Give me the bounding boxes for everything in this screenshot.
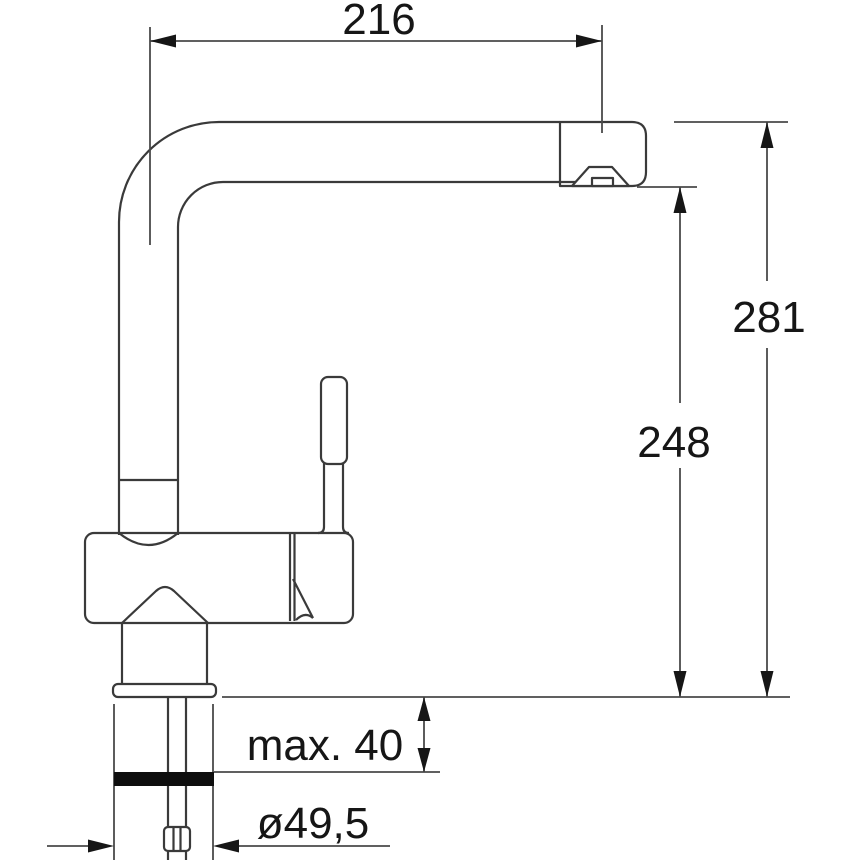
- spout-tube-outer: [119, 122, 560, 535]
- arrowhead-down: [418, 748, 431, 772]
- arrowhead-up: [418, 697, 431, 721]
- gasket-seal: [114, 772, 214, 786]
- handle-indicator-diagonal: [293, 579, 313, 618]
- arrowhead-right-pointing: [88, 840, 114, 853]
- hex-nut: [164, 827, 190, 851]
- dim-label-diameter: ø49,5: [257, 799, 370, 848]
- dim-label-216: 216: [342, 0, 415, 44]
- lever-grip: [321, 377, 347, 464]
- arrowhead-up: [761, 122, 774, 148]
- base-flange: [113, 684, 216, 697]
- arrowhead-down: [761, 671, 774, 697]
- arrowhead-down: [674, 671, 687, 697]
- arrowhead-left-pointing: [213, 840, 239, 853]
- arrowhead-up: [674, 187, 687, 213]
- riser-socket-arc: [119, 533, 178, 545]
- base-cone: [122, 587, 208, 623]
- dim-label-max40: max. 40: [247, 721, 404, 770]
- lever-stem-left: [318, 463, 324, 533]
- dimension-overall-height: 281: [674, 122, 806, 697]
- spout-tube-inner: [178, 182, 577, 535]
- dim-label-248: 248: [637, 418, 710, 467]
- dimension-outlet-height: 248: [637, 187, 711, 697]
- hex-nut-body: [164, 827, 190, 851]
- dim-label-281: 281: [732, 293, 805, 342]
- arrowhead-right: [576, 35, 602, 48]
- handle-indicator-arc: [296, 615, 313, 620]
- faucet-dimension-drawing: 216 281 248 max. 40 ø49,5: [0, 0, 860, 860]
- faucet-body: [85, 533, 353, 623]
- lever-stem-right: [343, 463, 349, 533]
- dimension-mounting-thickness: max. 40: [214, 697, 440, 772]
- aerator-outlet: [592, 178, 613, 186]
- arrowhead-left: [150, 35, 176, 48]
